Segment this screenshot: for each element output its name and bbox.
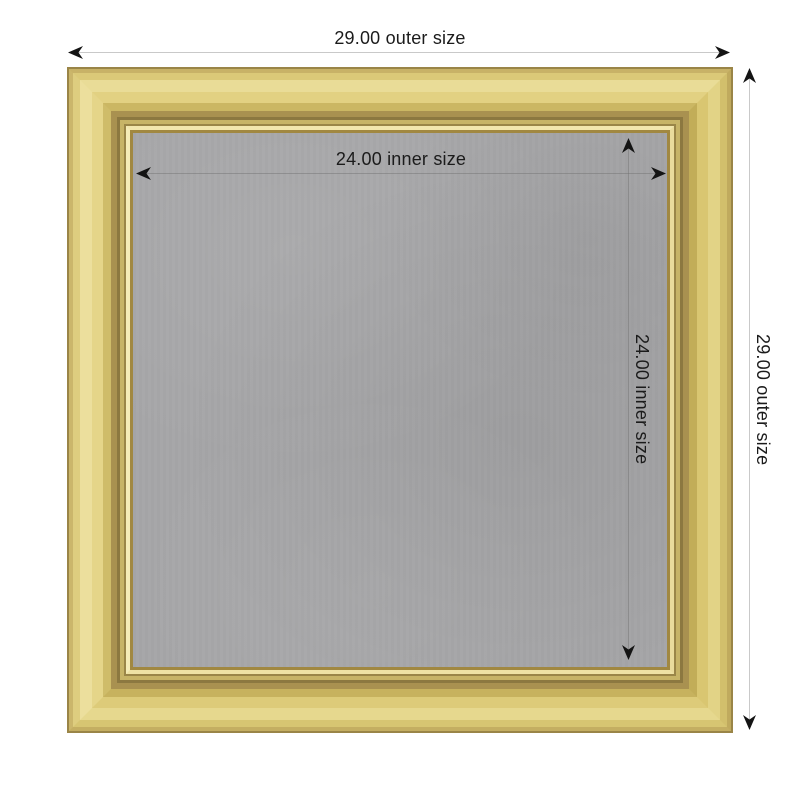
inner-width-dimension-line bbox=[138, 173, 664, 174]
gray-velvet-board bbox=[133, 133, 667, 667]
outer-height-label: 29.00 outer size bbox=[753, 67, 773, 733]
outer-width-dimension-line bbox=[70, 52, 728, 53]
inner-height-label: 24.00 inner size bbox=[632, 138, 652, 660]
inner-width-label: 24.00 inner size bbox=[136, 149, 666, 169]
outer-height-dimension-line bbox=[749, 70, 750, 728]
product-dimension-diagram: 29.00 outer size 29.00 outer size 24.00 … bbox=[0, 0, 800, 800]
outer-width-label: 29.00 outer size bbox=[67, 28, 733, 48]
inner-height-dimension-line bbox=[628, 141, 629, 657]
